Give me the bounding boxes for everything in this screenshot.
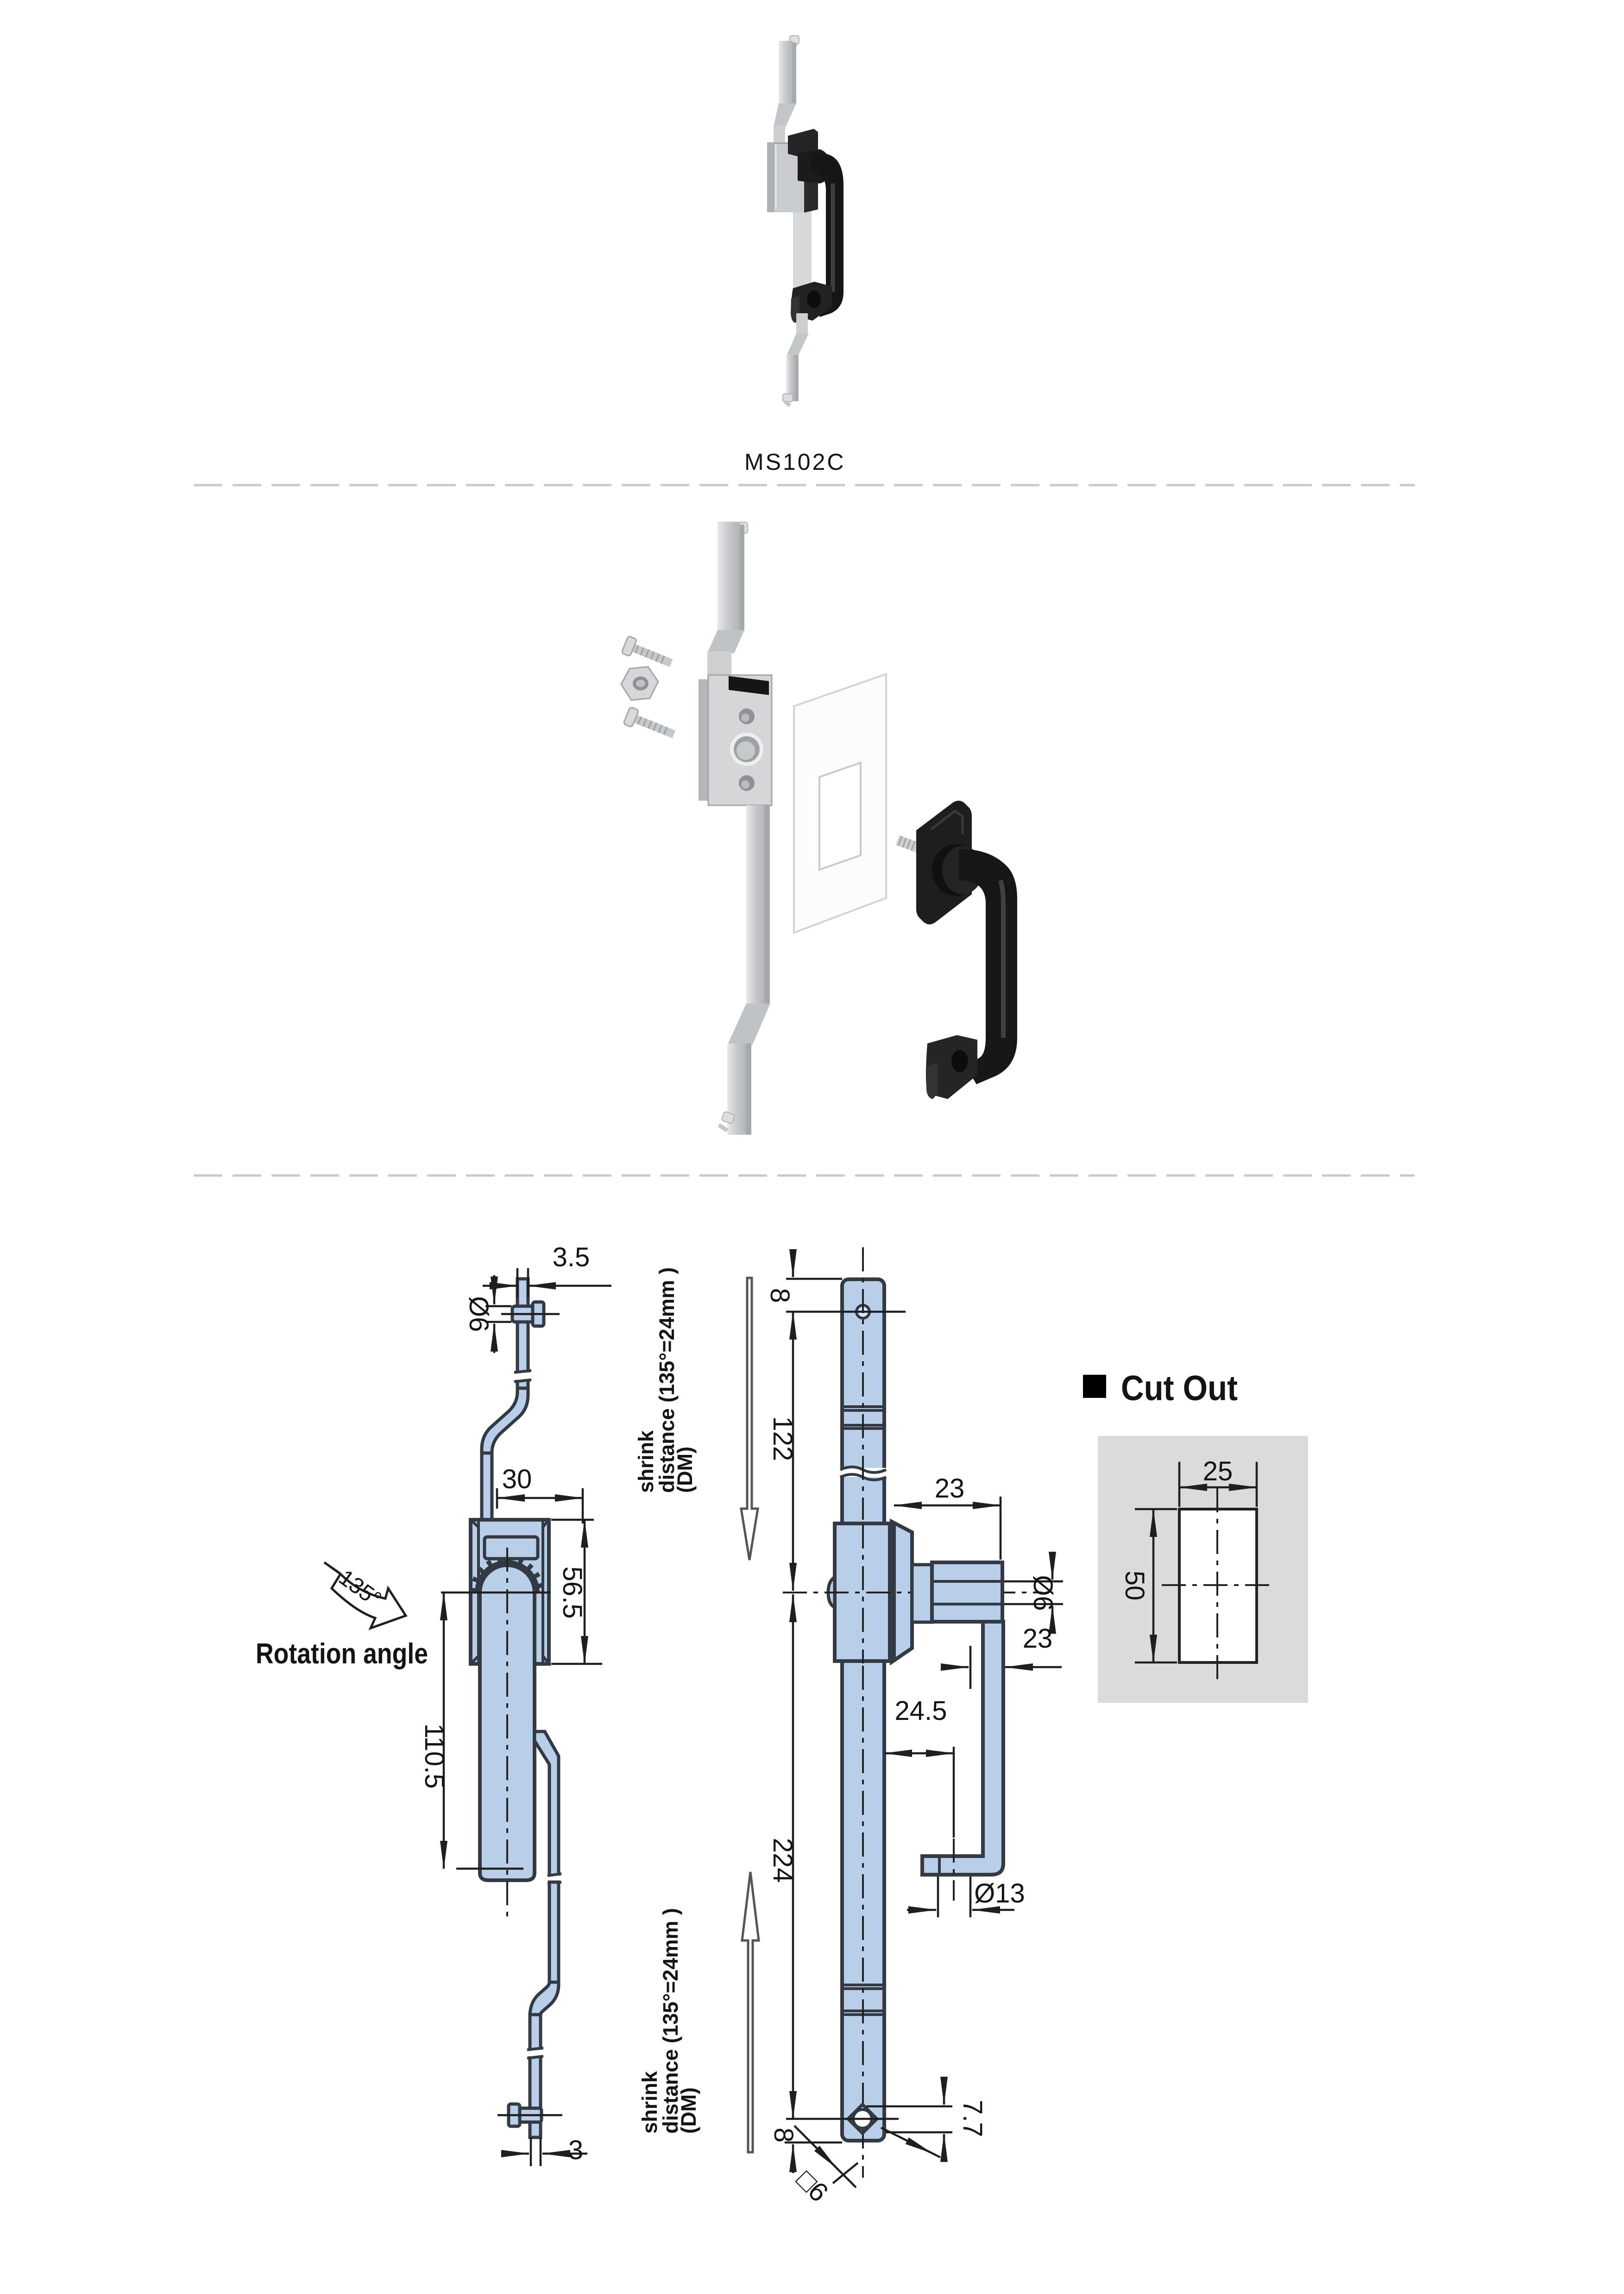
svg-text:Ø13: Ø13 — [974, 1878, 1025, 1909]
svg-text:MS102C: MS102C — [744, 449, 846, 475]
svg-text:3: 3 — [568, 2135, 583, 2165]
svg-text:224: 224 — [768, 1838, 798, 1883]
svg-text:shrink: shrink — [638, 2071, 661, 2134]
svg-text:3.5: 3.5 — [553, 1242, 590, 1272]
svg-text:(DM): (DM) — [677, 2087, 700, 2134]
svg-text:Ø6: Ø6 — [464, 1296, 494, 1332]
svg-text:Ø6: Ø6 — [1028, 1575, 1058, 1611]
svg-text:Cut Out: Cut Out — [1121, 1369, 1238, 1408]
svg-text:110.5: 110.5 — [419, 1724, 449, 1789]
svg-text:shrink: shrink — [634, 1430, 658, 1493]
svg-text:24.5: 24.5 — [895, 1696, 947, 1726]
svg-text:Rotation angle: Rotation angle — [256, 1638, 428, 1670]
svg-text:25: 25 — [1203, 1456, 1233, 1486]
svg-text:7.7: 7.7 — [957, 2100, 988, 2137]
svg-text:122: 122 — [768, 1416, 798, 1461]
svg-text:8: 8 — [768, 2128, 799, 2142]
svg-text:50: 50 — [1120, 1571, 1150, 1601]
svg-text:(DM): (DM) — [673, 1447, 697, 1493]
svg-text:30: 30 — [502, 1464, 532, 1494]
svg-text:23: 23 — [1023, 1624, 1053, 1654]
svg-text:56.5: 56.5 — [557, 1567, 587, 1619]
svg-text:23: 23 — [935, 1473, 965, 1504]
svg-text:8: 8 — [765, 1288, 795, 1303]
